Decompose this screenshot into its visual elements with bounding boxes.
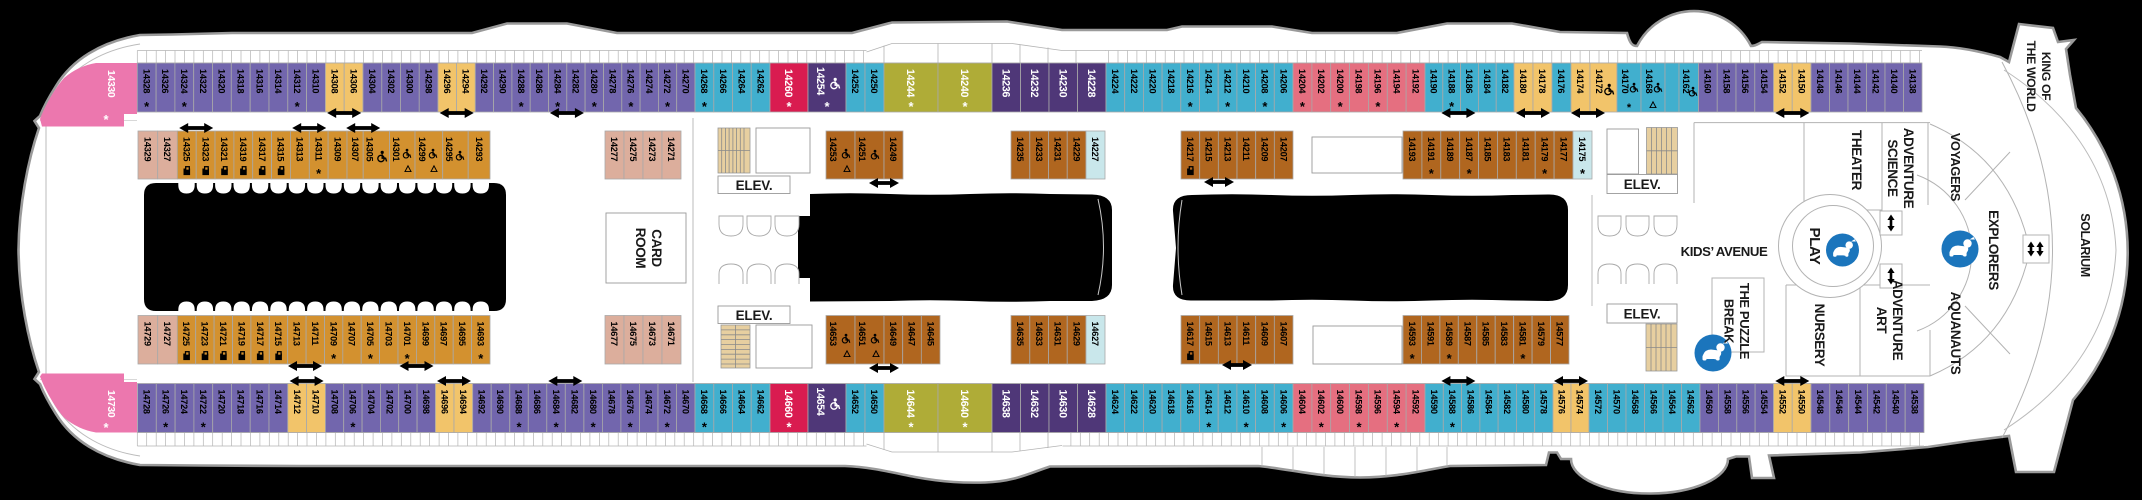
- svg-text:14720: 14720: [217, 390, 227, 414]
- svg-text:14317: 14317: [257, 137, 267, 161]
- svg-text:14686: 14686: [532, 390, 542, 414]
- svg-text:14723: 14723: [200, 322, 210, 346]
- svg-text:14156: 14156: [1740, 69, 1750, 93]
- svg-text:14177: 14177: [1558, 137, 1568, 161]
- svg-text:14617: 14617: [1185, 322, 1195, 346]
- svg-text:14272: 14272: [662, 69, 672, 93]
- svg-text:14228: 14228: [1085, 69, 1097, 98]
- svg-text:14592: 14592: [1410, 390, 1420, 414]
- svg-text:14730: 14730: [105, 390, 116, 418]
- svg-text:14632: 14632: [1028, 390, 1040, 419]
- svg-text:14327: 14327: [162, 137, 172, 161]
- svg-text:14703: 14703: [384, 322, 394, 346]
- svg-text:14271: 14271: [666, 137, 676, 161]
- svg-text:14630: 14630: [1056, 390, 1068, 419]
- svg-text:CARD: CARD: [649, 229, 664, 267]
- svg-text:ELEV.: ELEV.: [736, 308, 773, 323]
- svg-text:14692: 14692: [477, 390, 487, 414]
- svg-text:14728: 14728: [142, 390, 152, 414]
- svg-text:14185: 14185: [1483, 137, 1493, 161]
- svg-text:14718: 14718: [236, 390, 246, 414]
- svg-text:14293: 14293: [474, 137, 484, 161]
- svg-text:14716: 14716: [254, 390, 264, 414]
- svg-text:BREAK: BREAK: [1722, 299, 1737, 344]
- svg-text:14722: 14722: [198, 390, 208, 414]
- svg-text:14299: 14299: [417, 137, 427, 161]
- svg-text:14296: 14296: [442, 69, 452, 93]
- svg-text:KING OF: KING OF: [2039, 52, 2053, 101]
- svg-text:14316: 14316: [254, 69, 264, 93]
- svg-text:14647: 14647: [907, 322, 917, 346]
- svg-text:14550: 14550: [1796, 390, 1806, 414]
- svg-text:14311: 14311: [313, 137, 323, 161]
- svg-text:14231: 14231: [1053, 137, 1063, 161]
- svg-text:14671: 14671: [666, 322, 676, 346]
- svg-text:14189: 14189: [1445, 137, 1455, 161]
- svg-text:ELEV.: ELEV.: [1624, 177, 1661, 192]
- svg-text:14262: 14262: [755, 69, 765, 93]
- svg-text:14328: 14328: [141, 69, 151, 93]
- svg-text:14538: 14538: [1909, 390, 1919, 414]
- svg-text:14548: 14548: [1815, 390, 1825, 414]
- svg-text:14650: 14650: [869, 390, 879, 414]
- svg-text:14713: 14713: [292, 322, 302, 346]
- svg-text:14697: 14697: [439, 322, 449, 346]
- svg-text:14616: 14616: [1185, 390, 1195, 414]
- svg-text:14323: 14323: [200, 137, 210, 161]
- svg-text:14581: 14581: [1518, 322, 1528, 346]
- svg-text:14676: 14676: [625, 390, 635, 414]
- svg-text:14602: 14602: [1316, 390, 1326, 414]
- svg-text:14702: 14702: [384, 390, 394, 414]
- svg-text:14668: 14668: [699, 390, 709, 414]
- svg-text:14712: 14712: [292, 390, 302, 414]
- svg-text:14660: 14660: [782, 390, 794, 419]
- svg-text:*: *: [1627, 102, 1632, 114]
- svg-text:14542: 14542: [1872, 390, 1882, 414]
- svg-text:14674: 14674: [643, 390, 653, 415]
- svg-text:14310: 14310: [311, 69, 321, 93]
- svg-text:14610: 14610: [1241, 390, 1251, 414]
- svg-text:14574: 14574: [1575, 390, 1585, 415]
- svg-text:14146: 14146: [1834, 69, 1844, 93]
- svg-text:14211: 14211: [1241, 137, 1251, 161]
- svg-text:14666: 14666: [718, 390, 728, 414]
- svg-text:14235: 14235: [1015, 137, 1025, 161]
- svg-text:14179: 14179: [1539, 137, 1549, 161]
- svg-text:14600: 14600: [1335, 390, 1345, 414]
- svg-text:14651: 14651: [857, 322, 867, 346]
- svg-text:14589: 14589: [1444, 322, 1454, 346]
- svg-text:14180: 14180: [1518, 69, 1528, 93]
- svg-text:14210: 14210: [1241, 69, 1251, 93]
- svg-text:14604: 14604: [1297, 390, 1307, 415]
- svg-text:14233: 14233: [1034, 137, 1044, 161]
- svg-text:14240: 14240: [958, 69, 970, 98]
- svg-text:14638: 14638: [999, 390, 1011, 419]
- svg-text:THEATER: THEATER: [1849, 130, 1864, 191]
- svg-text:14552: 14552: [1778, 390, 1788, 414]
- svg-text:14252: 14252: [850, 69, 860, 93]
- svg-text:14312: 14312: [292, 69, 302, 93]
- svg-text:14727: 14727: [162, 322, 172, 346]
- svg-text:14313: 14313: [295, 137, 305, 161]
- svg-text:14308: 14308: [330, 69, 340, 93]
- svg-text:14142: 14142: [1871, 69, 1881, 93]
- svg-text:14315: 14315: [276, 137, 286, 161]
- svg-text:14321: 14321: [219, 137, 229, 161]
- svg-text:14593: 14593: [1407, 322, 1417, 346]
- svg-text:14286: 14286: [534, 69, 544, 93]
- svg-text:14154: 14154: [1759, 69, 1769, 94]
- svg-text:14290: 14290: [498, 69, 508, 93]
- svg-text:ELEV.: ELEV.: [736, 178, 773, 193]
- svg-text:14721: 14721: [218, 322, 228, 346]
- svg-text:14633: 14633: [1034, 322, 1044, 346]
- svg-text:14227: 14227: [1090, 137, 1100, 161]
- svg-text:14628: 14628: [1085, 390, 1097, 419]
- svg-text:14218: 14218: [1166, 69, 1176, 93]
- svg-text:14302: 14302: [386, 69, 396, 93]
- svg-text:14580: 14580: [1520, 390, 1530, 414]
- svg-text:14645: 14645: [925, 322, 935, 346]
- svg-text:14187: 14187: [1464, 137, 1474, 161]
- svg-text:14564: 14564: [1667, 390, 1677, 415]
- svg-text:ART: ART: [1874, 307, 1889, 335]
- svg-text:14270: 14270: [681, 69, 691, 93]
- svg-text:14329: 14329: [143, 137, 153, 161]
- svg-text:14598: 14598: [1354, 390, 1364, 414]
- svg-text:14175: 14175: [1577, 137, 1587, 161]
- svg-text:14678: 14678: [606, 390, 616, 414]
- svg-text:14583: 14583: [1499, 322, 1509, 346]
- svg-text:14606: 14606: [1278, 390, 1288, 414]
- svg-text:14649: 14649: [888, 322, 898, 346]
- svg-text:14277: 14277: [609, 137, 619, 161]
- svg-text:14208: 14208: [1260, 69, 1270, 93]
- svg-text:14724: 14724: [179, 390, 189, 415]
- svg-text:14566: 14566: [1649, 390, 1659, 414]
- svg-text:14249: 14249: [888, 137, 898, 161]
- svg-text:14200: 14200: [1335, 69, 1345, 93]
- svg-text:14607: 14607: [1278, 322, 1288, 346]
- svg-text:14715: 14715: [273, 322, 283, 346]
- svg-text:14675: 14675: [628, 322, 638, 346]
- svg-text:14540: 14540: [1891, 390, 1901, 414]
- svg-text:AQUANAUTS: AQUANAUTS: [1948, 292, 1963, 375]
- svg-text:14178: 14178: [1537, 69, 1547, 93]
- svg-text:14704: 14704: [366, 390, 376, 415]
- svg-text:KIDS’ AVENUE: KIDS’ AVENUE: [1681, 244, 1768, 259]
- svg-text:14670: 14670: [680, 390, 690, 414]
- svg-text:ROOM: ROOM: [633, 228, 648, 269]
- svg-text:14682: 14682: [569, 390, 579, 414]
- svg-text:14664: 14664: [737, 390, 747, 415]
- svg-text:14190: 14190: [1429, 69, 1439, 93]
- svg-text:14274: 14274: [644, 69, 654, 94]
- svg-text:14710: 14710: [311, 390, 321, 414]
- svg-text:14276: 14276: [626, 69, 636, 93]
- svg-text:14209: 14209: [1260, 137, 1270, 161]
- svg-text:14266: 14266: [718, 69, 728, 93]
- svg-text:14253: 14253: [828, 137, 838, 161]
- svg-text:14700: 14700: [403, 390, 413, 414]
- svg-text:EXPLORERS: EXPLORERS: [1986, 210, 2001, 290]
- svg-text:14556: 14556: [1741, 390, 1751, 414]
- svg-text:14680: 14680: [588, 390, 598, 414]
- svg-text:14181: 14181: [1521, 137, 1531, 161]
- svg-text:14198: 14198: [1354, 69, 1364, 93]
- svg-text:14215: 14215: [1204, 137, 1214, 161]
- svg-text:14673: 14673: [647, 322, 657, 346]
- svg-text:14615: 14615: [1204, 322, 1214, 346]
- svg-text:14295: 14295: [444, 137, 454, 161]
- svg-text:VOYAGERS: VOYAGERS: [1948, 133, 1963, 202]
- svg-text:14582: 14582: [1502, 390, 1512, 414]
- svg-text:14309: 14309: [332, 137, 342, 161]
- svg-text:14654: 14654: [814, 388, 826, 416]
- svg-text:14672: 14672: [662, 390, 672, 414]
- svg-text:14304: 14304: [367, 69, 377, 94]
- svg-text:14236: 14236: [999, 69, 1011, 98]
- svg-text:14699: 14699: [420, 322, 430, 346]
- svg-text:14319: 14319: [238, 137, 248, 161]
- svg-text:14213: 14213: [1222, 137, 1232, 161]
- svg-text:14260: 14260: [782, 69, 794, 98]
- svg-text:14609: 14609: [1260, 322, 1270, 346]
- svg-text:14182: 14182: [1500, 69, 1510, 93]
- svg-text:14318: 14318: [236, 69, 246, 93]
- svg-text:14320: 14320: [217, 69, 227, 93]
- svg-text:14570: 14570: [1612, 390, 1622, 414]
- svg-text:14186: 14186: [1464, 69, 1474, 93]
- svg-text:14322: 14322: [198, 69, 208, 93]
- svg-text:THE WORLD: THE WORLD: [2024, 41, 2038, 112]
- svg-text:SOLARIUM: SOLARIUM: [2078, 213, 2092, 276]
- svg-text:14254: 14254: [814, 67, 826, 95]
- svg-text:14184: 14184: [1482, 69, 1492, 94]
- svg-text:14174: 14174: [1575, 69, 1585, 94]
- svg-text:14220: 14220: [1148, 69, 1158, 93]
- svg-text:14148: 14148: [1815, 69, 1825, 93]
- svg-text:14644: 14644: [904, 390, 916, 419]
- svg-text:14635: 14635: [1015, 322, 1025, 346]
- svg-text:14690: 14690: [495, 390, 505, 414]
- svg-text:14138: 14138: [1908, 69, 1918, 93]
- svg-text:14144: 14144: [1852, 69, 1862, 94]
- svg-text:14196: 14196: [1373, 69, 1383, 93]
- svg-text:14280: 14280: [589, 69, 599, 93]
- svg-text:14568: 14568: [1630, 390, 1640, 414]
- svg-text:14585: 14585: [1481, 322, 1491, 346]
- svg-text:14707: 14707: [347, 322, 357, 346]
- svg-text:14708: 14708: [329, 390, 339, 414]
- svg-text:14725: 14725: [181, 322, 191, 346]
- svg-text:14162: 14162: [1681, 69, 1691, 93]
- svg-text:14244: 14244: [904, 69, 916, 98]
- svg-text:14183: 14183: [1502, 137, 1512, 161]
- svg-text:14631: 14631: [1053, 322, 1063, 346]
- svg-text:14188: 14188: [1446, 69, 1456, 93]
- svg-text:14612: 14612: [1222, 390, 1232, 414]
- svg-text:14251: 14251: [857, 137, 867, 161]
- svg-text:14288: 14288: [516, 69, 526, 93]
- svg-text:14176: 14176: [1556, 69, 1566, 93]
- svg-text:14554: 14554: [1759, 390, 1769, 415]
- svg-text:14590: 14590: [1429, 390, 1439, 414]
- svg-text:14168: 14168: [1644, 69, 1654, 93]
- svg-text:14726: 14726: [160, 390, 170, 414]
- svg-text:14278: 14278: [607, 69, 617, 93]
- svg-text:14629: 14629: [1071, 322, 1081, 346]
- svg-text:14214: 14214: [1204, 69, 1214, 94]
- svg-text:14307: 14307: [350, 137, 360, 161]
- svg-text:14282: 14282: [571, 69, 581, 93]
- svg-text:14714: 14714: [273, 390, 283, 415]
- svg-text:14306: 14306: [348, 69, 358, 93]
- svg-text:14562: 14562: [1686, 390, 1696, 414]
- svg-text:14191: 14191: [1426, 137, 1436, 161]
- svg-text:14206: 14206: [1278, 69, 1288, 93]
- svg-text:14729: 14729: [143, 322, 153, 346]
- svg-text:14170: 14170: [1620, 69, 1630, 93]
- svg-text:14588: 14588: [1447, 390, 1457, 414]
- svg-text:ADVENTURE: ADVENTURE: [1890, 280, 1905, 361]
- svg-text:14305: 14305: [365, 137, 375, 161]
- svg-text:14216: 14216: [1185, 69, 1195, 93]
- svg-text:14653: 14653: [828, 322, 838, 346]
- svg-text:14587: 14587: [1462, 322, 1472, 346]
- svg-text:14273: 14273: [647, 137, 657, 161]
- svg-text:14275: 14275: [628, 137, 638, 161]
- svg-text:14579: 14579: [1536, 322, 1546, 346]
- svg-text:14586: 14586: [1465, 390, 1475, 414]
- svg-text:14576: 14576: [1557, 390, 1567, 414]
- svg-text:14230: 14230: [1056, 69, 1068, 98]
- svg-text:14695: 14695: [457, 322, 467, 346]
- svg-text:14326: 14326: [160, 69, 170, 93]
- svg-text:14594: 14594: [1391, 390, 1401, 415]
- svg-text:14217: 14217: [1185, 137, 1195, 161]
- svg-text:14577: 14577: [1555, 322, 1565, 346]
- svg-text:14194: 14194: [1391, 69, 1401, 94]
- svg-text:14232: 14232: [1028, 69, 1040, 98]
- svg-text:14229: 14229: [1071, 137, 1081, 161]
- svg-text:ELEV.: ELEV.: [1624, 307, 1661, 322]
- svg-text:14193: 14193: [1407, 137, 1417, 161]
- svg-text:14578: 14578: [1539, 390, 1549, 414]
- svg-text:14324: 14324: [179, 69, 189, 94]
- svg-text:14624: 14624: [1110, 390, 1120, 415]
- svg-text:14706: 14706: [348, 390, 358, 414]
- svg-text:14614: 14614: [1204, 390, 1214, 415]
- svg-text:14325: 14325: [181, 137, 191, 161]
- svg-text:14613: 14613: [1222, 322, 1232, 346]
- svg-text:14314: 14314: [273, 69, 283, 94]
- svg-text:14596: 14596: [1373, 390, 1383, 414]
- svg-text:14698: 14698: [421, 390, 431, 414]
- svg-text:14150: 14150: [1796, 69, 1806, 93]
- svg-text:14627: 14627: [1090, 322, 1100, 346]
- svg-text:14172: 14172: [1594, 69, 1604, 93]
- svg-text:14222: 14222: [1129, 69, 1139, 93]
- svg-text:14140: 14140: [1889, 69, 1899, 93]
- svg-text:14202: 14202: [1316, 69, 1326, 93]
- svg-text:14677: 14677: [609, 322, 619, 346]
- svg-text:14688: 14688: [514, 390, 524, 414]
- svg-text:14719: 14719: [236, 322, 246, 346]
- svg-text:14622: 14622: [1129, 390, 1139, 414]
- svg-text:14558: 14558: [1722, 390, 1732, 414]
- svg-text:14158: 14158: [1721, 69, 1731, 93]
- svg-text:14224: 14224: [1110, 69, 1120, 94]
- svg-text:14294: 14294: [461, 69, 471, 94]
- svg-text:14268: 14268: [699, 69, 709, 93]
- svg-text:14608: 14608: [1260, 390, 1270, 414]
- svg-text:THE PUZZLE: THE PUZZLE: [1737, 283, 1752, 360]
- svg-text:14662: 14662: [755, 390, 765, 414]
- svg-text:14544: 14544: [1853, 390, 1863, 415]
- svg-text:14207: 14207: [1278, 137, 1288, 161]
- svg-text:14584: 14584: [1484, 390, 1494, 415]
- svg-text:14572: 14572: [1593, 390, 1603, 414]
- svg-text:14250: 14250: [869, 69, 879, 93]
- svg-text:14160: 14160: [1703, 69, 1713, 93]
- svg-text:14560: 14560: [1704, 390, 1714, 414]
- svg-text:14292: 14292: [479, 69, 489, 93]
- svg-text:PLAY: PLAY: [1806, 227, 1823, 264]
- svg-text:14212: 14212: [1222, 69, 1232, 93]
- svg-text:ADVENTURE: ADVENTURE: [1901, 128, 1916, 209]
- svg-text:SCIENCE: SCIENCE: [1885, 139, 1900, 197]
- svg-text:14284: 14284: [552, 69, 562, 94]
- svg-text:14546: 14546: [1834, 390, 1844, 414]
- svg-text:14652: 14652: [850, 390, 860, 414]
- svg-text:14684: 14684: [551, 390, 561, 415]
- svg-text:14264: 14264: [737, 69, 747, 94]
- svg-text:14693: 14693: [476, 322, 486, 346]
- svg-text:14611: 14611: [1241, 322, 1251, 346]
- svg-text:14717: 14717: [255, 322, 265, 346]
- svg-text:14204: 14204: [1297, 69, 1307, 94]
- svg-text:14696: 14696: [439, 390, 449, 414]
- svg-text:14192: 14192: [1410, 69, 1420, 93]
- svg-text:14620: 14620: [1148, 390, 1158, 414]
- svg-text:14705: 14705: [365, 322, 375, 346]
- svg-text:14618: 14618: [1166, 390, 1176, 414]
- svg-text:14701: 14701: [402, 322, 412, 346]
- svg-text:14591: 14591: [1425, 322, 1435, 346]
- svg-text:14640: 14640: [958, 390, 970, 419]
- svg-text:NURSERY: NURSERY: [1812, 304, 1827, 367]
- svg-text:14300: 14300: [405, 69, 415, 93]
- svg-text:14301: 14301: [391, 137, 401, 161]
- svg-text:14694: 14694: [458, 390, 468, 415]
- svg-text:14711: 14711: [310, 322, 320, 346]
- svg-text:14298: 14298: [423, 69, 433, 93]
- svg-text:14330: 14330: [105, 70, 116, 98]
- svg-text:14152: 14152: [1778, 69, 1788, 93]
- svg-text:14709: 14709: [328, 322, 338, 346]
